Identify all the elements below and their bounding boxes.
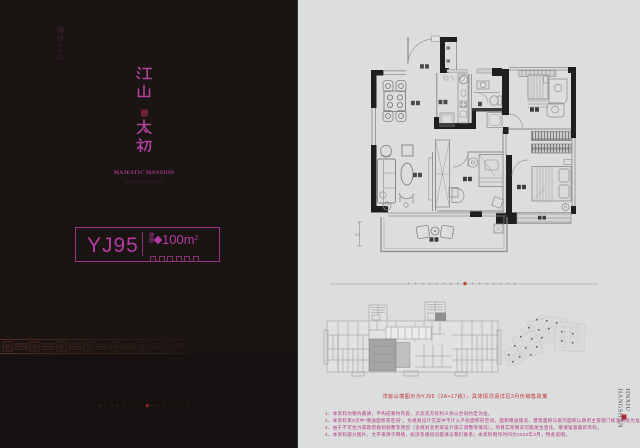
svg-text:1、本资料为要约邀请，不构成要约内容，买卖双方权利义务以合同: 1、本资料为要约邀请，不构成要约内容，买卖双方权利义务以合同约定为准。 — [325, 410, 493, 417]
svg-text:2.1: 2.1 — [355, 233, 360, 237]
svg-text:洋房山境图示为YJ95（2A+17栋），具体情况请详见3月份: 洋房山境图示为YJ95（2A+17栋），具体情况请详见3月份销售政策 — [382, 392, 548, 400]
svg-text:JIANGSHAN: JIANGSHAN — [617, 388, 624, 428]
svg-text:4、本资料部分图片、文字来源于网络，如涉及版权问题请与我们联: 4、本资料部分图片、文字来源于网络，如涉及版权问题请与我们联系；本资料制作时间为… — [325, 431, 570, 438]
svg-text:JINXIU: JINXIU — [624, 388, 631, 412]
svg-text:2、本资料第5页中“赠送面积或空间”，为规划设计方案中不计入: 2、本资料第5页中“赠送面积或空间”，为规划设计方案中不计入产权面积的空间，面积… — [325, 417, 640, 424]
svg-text:3、由于不可抗力或政府规划调整等原因（含规划变更或设计施工调: 3、由于不可抗力或政府规划调整等原因（含规划变更或设计施工调整等情况），项目实际… — [325, 424, 602, 431]
